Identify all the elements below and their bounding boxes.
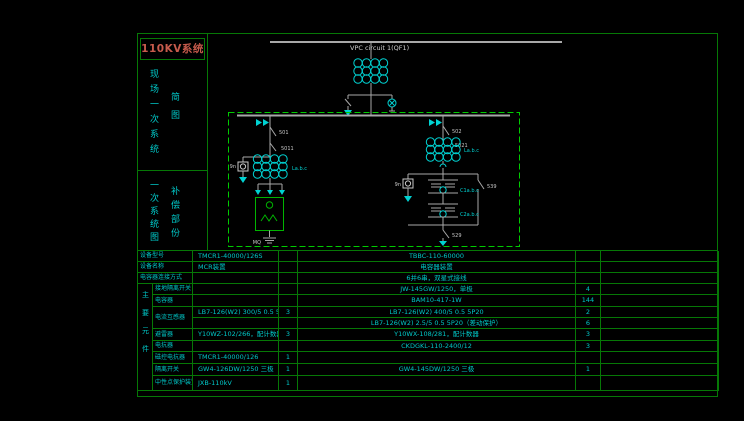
earth-icon (263, 238, 276, 243)
value-cell: 电容器装置 (298, 262, 576, 273)
spare-cell (601, 329, 719, 341)
breaker-icon (270, 127, 276, 136)
row-label: 电抗器 (153, 341, 193, 352)
capacitor-group-label: C1a.b.c (460, 188, 479, 194)
qty-cell (576, 273, 601, 284)
value-cell: LB7-126(W2) 300/5 0.5 5P20 (193, 307, 279, 318)
instrument-icon (388, 95, 396, 111)
qty-cell (279, 295, 298, 307)
pt-label: 9n (395, 182, 401, 188)
qty-cell (576, 376, 601, 391)
spare-cell (601, 284, 719, 295)
capacitor-bay: 502 5021 La.b.c 9n (395, 116, 497, 246)
group-label: 主要元件 (138, 284, 153, 391)
value-cell (193, 284, 279, 295)
row-label: 电流互感器 (153, 307, 193, 329)
arrow-icon (256, 119, 262, 126)
spare-cell (601, 364, 719, 376)
reactor-ground-label: MQ (253, 240, 261, 246)
arrow-icon (436, 119, 442, 126)
reactor-bay: 501 5011 9n La.b.c (230, 116, 308, 246)
pt-icon (238, 162, 248, 171)
spare-cell (601, 273, 719, 284)
capacitor-group-1 (428, 174, 458, 204)
capacitor-group-2 (428, 204, 458, 225)
value-cell (298, 352, 576, 364)
value-cell (193, 341, 279, 352)
breaker-label: 502 (452, 129, 462, 135)
spare-cell (601, 307, 719, 318)
qty-cell (279, 251, 298, 262)
switch-icon (443, 230, 449, 238)
incoming-circuit: VPC circuit 1(QF1) (270, 42, 562, 116)
spare-cell (601, 295, 719, 307)
row-label: 接地隔离开关 (153, 284, 193, 295)
value-cell: BAM10-417-1W (298, 295, 576, 307)
value-cell: GW4-126DW/1250 三极 (193, 364, 279, 376)
spare-cell (601, 341, 719, 352)
row-label: 磁控电抗器 (153, 352, 193, 364)
value-cell (193, 273, 279, 284)
value-cell (193, 295, 279, 307)
value-cell (298, 376, 576, 391)
ground-arrow-icon (239, 177, 247, 183)
spare-cell (601, 251, 719, 262)
ground-arrow-icon (404, 196, 412, 202)
value-cell: JW-145GW/1250，单极 (298, 284, 576, 295)
cad-drawing-sheet: VPC circuit 1(QF1) (0, 0, 744, 421)
phase-label: La.b.c (464, 148, 479, 154)
qty-cell: 6 (576, 318, 601, 329)
coil-icon (440, 164, 446, 167)
qty-cell: 2 (576, 307, 601, 318)
qty-cell (576, 251, 601, 262)
value-cell: JXB-110kV (193, 376, 279, 391)
value-cell: MCR装置 (193, 262, 279, 273)
spare-cell (601, 262, 719, 273)
breaker-icon (443, 126, 449, 135)
row-label: 避雷器 (153, 329, 193, 341)
qty-cell (279, 318, 298, 329)
value-cell: Y10WX-108/281，配计数器 (298, 329, 576, 341)
disconnect-icon (270, 143, 276, 151)
phase-label: La.b.c (292, 166, 307, 172)
row-label: 电容器连接方式 (138, 273, 193, 284)
qty-cell: 1 (279, 364, 298, 376)
qty-cell (279, 262, 298, 273)
compensation-area: 501 5011 9n La.b.c (229, 113, 520, 247)
mcr-reactor-icon (256, 198, 284, 231)
qty-cell (576, 352, 601, 364)
capacitor-transformer-icon (426, 138, 460, 161)
value-cell: TMCR1-40000/126 (193, 352, 279, 364)
switch-label: 539 (487, 184, 497, 190)
value-cell (193, 318, 279, 329)
qty-cell (279, 341, 298, 352)
breaker-label: 501 (279, 130, 289, 136)
dashed-boundary (229, 113, 520, 247)
ground-arrow-icon (439, 241, 447, 246)
qty-cell: 3 (279, 329, 298, 341)
spare-cell (601, 376, 719, 391)
main-transformer-icon (354, 59, 388, 83)
spare-cell (601, 318, 719, 329)
switch-icon (478, 180, 484, 189)
row-label: 电容器 (153, 295, 193, 307)
row-label: 中性点保护装置 (153, 376, 193, 391)
qty-cell: 3 (279, 307, 298, 318)
qty-cell: 144 (576, 295, 601, 307)
pt-icon (403, 179, 413, 188)
qty-cell (576, 262, 601, 273)
value-cell: TMCR1-40000/126S (193, 251, 279, 262)
drawing-title: 110KV系统 (141, 39, 204, 58)
switch-label: 529 (452, 233, 462, 239)
qty-cell: 4 (576, 284, 601, 295)
pt-label: 9n (230, 164, 236, 170)
value-cell: Y10WZ-102/266，配计数器 (193, 329, 279, 341)
value-cell: TBBC-110-60000 (298, 251, 576, 262)
qty-cell (279, 273, 298, 284)
sidebar-caption-primary-sub: 简图 (168, 92, 181, 128)
sidebar-caption-secondary-sub: 补偿部份 (168, 186, 181, 242)
sidebar-caption-primary: 现场一次系统 (147, 69, 160, 159)
sidebar-caption-secondary: 一次系统图 (147, 180, 160, 245)
qty-cell (279, 284, 298, 295)
qty-cell: 1 (279, 376, 298, 391)
row-label: 隔离开关 (153, 364, 193, 376)
equipment-spec-table: 设备型号 TMCR1-40000/126S TBBC-110-60000 设备名… (137, 250, 718, 390)
spare-cell (601, 352, 719, 364)
value-cell: LB7-126(W2) 2.5/5 0.5 5P20（差动保护） (298, 318, 576, 329)
row-label: 设备名称 (138, 262, 193, 273)
qty-cell: 3 (576, 329, 601, 341)
value-cell: CKDGKL-110-2400/12 (298, 341, 576, 352)
incoming-feeder-label: VPC circuit 1(QF1) (350, 44, 409, 52)
disconnect-label: 5011 (281, 146, 294, 152)
qty-cell: 3 (576, 341, 601, 352)
reactor-transformer-icon (253, 155, 287, 178)
qty-cell: 1 (279, 352, 298, 364)
value-cell: LB7-126(W2) 400/5 0.5 5P20 (298, 307, 576, 318)
value-cell: 6并6串，双星式接线 (298, 273, 576, 284)
arrow-icon (263, 119, 269, 126)
qty-cell: 1 (576, 364, 601, 376)
value-cell: GW4-145DW/1250 三极 (298, 364, 576, 376)
arrow-icon (429, 119, 435, 126)
row-label: 设备型号 (138, 251, 193, 262)
capacitor-group-label: C2a.b.c (460, 212, 479, 218)
